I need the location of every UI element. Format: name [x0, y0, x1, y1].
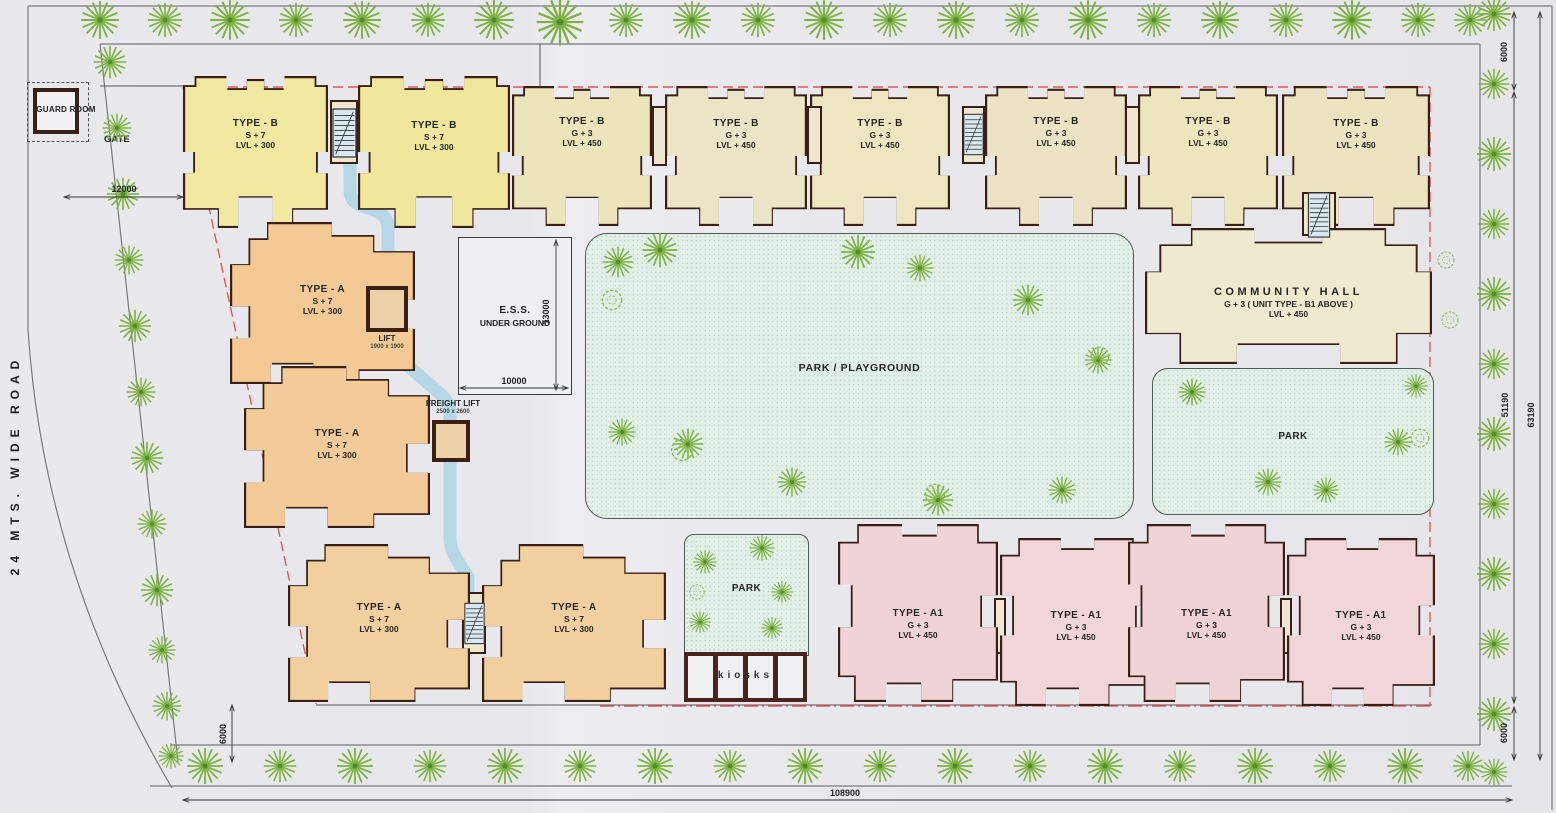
building-type-b-6: TYPE - B G + 3 LVL + 450 — [985, 86, 1127, 226]
building-label: TYPE - B G + 3 LVL + 450 — [1138, 116, 1278, 148]
building-type-a1-3: TYPE - A1 G + 3 LVL + 450 — [1128, 524, 1285, 702]
dim-bottom-right: 6000 — [1499, 723, 1509, 743]
dim-right-inner: 51190 — [1500, 393, 1510, 418]
building-type-a1-4: TYPE - A1 G + 3 LVL + 450 — [1287, 538, 1435, 706]
park-south-text: PARK — [685, 583, 808, 595]
building-label: TYPE - B S + 7 LVL + 300 — [183, 118, 328, 150]
building-label: TYPE - B G + 3 LVL + 450 — [1282, 118, 1430, 150]
dim-bottom: 108900 — [830, 788, 860, 798]
building-label: TYPE - B G + 3 LVL + 450 — [985, 116, 1127, 148]
dim-top-right: 6000 — [1499, 42, 1509, 62]
stair-connector — [1125, 106, 1140, 164]
road-name-label: 24 MTS. WIDE ROAD — [8, 305, 22, 625]
building-footprint — [512, 86, 652, 226]
building-footprint — [665, 86, 807, 226]
ess-title: E.S.S. — [459, 305, 571, 316]
building-type-a1-1: TYPE - A1 G + 3 LVL + 450 — [838, 524, 998, 702]
gate-label: GATE — [104, 134, 130, 145]
lift-shaft — [366, 286, 408, 332]
dim-right-outer: 63190 — [1526, 402, 1536, 427]
building-label: TYPE - B G + 3 LVL + 450 — [512, 116, 652, 148]
park-playground-label: PARK / PLAYGROUND — [586, 362, 1133, 375]
ess-subtitle: UNDER GROUND — [459, 318, 571, 328]
building-label: TYPE - A1 G + 3 LVL + 450 — [1287, 610, 1435, 642]
ess-underground-area: E.S.S. UNDER GROUND — [458, 237, 572, 395]
building-label: TYPE - A S + 7 LVL + 300 — [288, 602, 470, 634]
building-type-b-4: TYPE - B G + 3 LVL + 450 — [665, 86, 807, 226]
building-label: TYPE - B G + 3 LVL + 450 — [810, 118, 950, 150]
stair-connector — [807, 106, 822, 164]
building-type-a-3: TYPE - A S + 7 LVL + 300 — [288, 544, 470, 702]
park-east-area: PARK — [1152, 368, 1434, 515]
park-playground-area: PARK / PLAYGROUND — [585, 233, 1134, 519]
building-footprint — [810, 86, 950, 226]
ess-label: E.S.S. UNDER GROUND — [459, 238, 571, 394]
park-east-text: PARK — [1153, 431, 1433, 443]
freight-lift-label: FREIGHT LIFT 2500 x 2600 — [406, 400, 500, 415]
freight-lift-shaft — [432, 420, 470, 462]
dim-bottom-left: 6000 — [218, 724, 228, 744]
building-label: COMMUNITY HALL G + 3 ( UNIT TYPE - B1 AB… — [1145, 286, 1432, 320]
park-playground-text: PARK / PLAYGROUND — [586, 362, 1133, 375]
kiosks-label: kiosks — [684, 670, 807, 681]
building-type-b-5: TYPE - B G + 3 LVL + 450 — [810, 86, 950, 226]
guard-room-label: GUARD ROOM — [20, 105, 112, 114]
building-footprint — [1138, 86, 1278, 226]
stair-connector — [652, 106, 667, 166]
lift-label: LIFT 1900 x 1900 — [356, 335, 418, 350]
building-community-hall: COMMUNITY HALL G + 3 ( UNIT TYPE - B1 AB… — [1145, 228, 1432, 364]
building-label: TYPE - A1 G + 3 LVL + 450 — [838, 608, 998, 640]
building-label: TYPE - A1 G + 3 LVL + 450 — [1128, 608, 1285, 640]
building-type-a-2: TYPE - A S + 7 LVL + 300 — [244, 366, 430, 528]
site-plan-canvas: PARK / PLAYGROUND PARK PARK kiosks E.S.S… — [0, 0, 1556, 813]
park-south-label: PARK — [685, 583, 808, 595]
building-label: TYPE - B G + 3 LVL + 450 — [665, 118, 807, 150]
building-type-b-2: TYPE - B S + 7 LVL + 300 — [358, 76, 510, 228]
stair-connector — [330, 100, 358, 164]
park-south-area: PARK — [684, 534, 809, 656]
building-type-b-7: TYPE - B G + 3 LVL + 450 — [1138, 86, 1278, 226]
building-label: TYPE - A S + 7 LVL + 300 — [244, 428, 430, 460]
building-footprint — [183, 76, 328, 228]
park-east-label: PARK — [1153, 431, 1433, 443]
building-type-b-1: TYPE - B S + 7 LVL + 300 — [183, 76, 328, 228]
building-label: TYPE - A S + 7 LVL + 300 — [482, 602, 666, 634]
building-label: TYPE - B S + 7 LVL + 300 — [358, 120, 510, 152]
building-type-b-3: TYPE - B G + 3 LVL + 450 — [512, 86, 652, 226]
dim-top-left: 12000 — [111, 184, 136, 194]
building-footprint — [985, 86, 1127, 226]
building-type-a-4: TYPE - A S + 7 LVL + 300 — [482, 544, 666, 702]
stair-connector — [962, 106, 985, 164]
